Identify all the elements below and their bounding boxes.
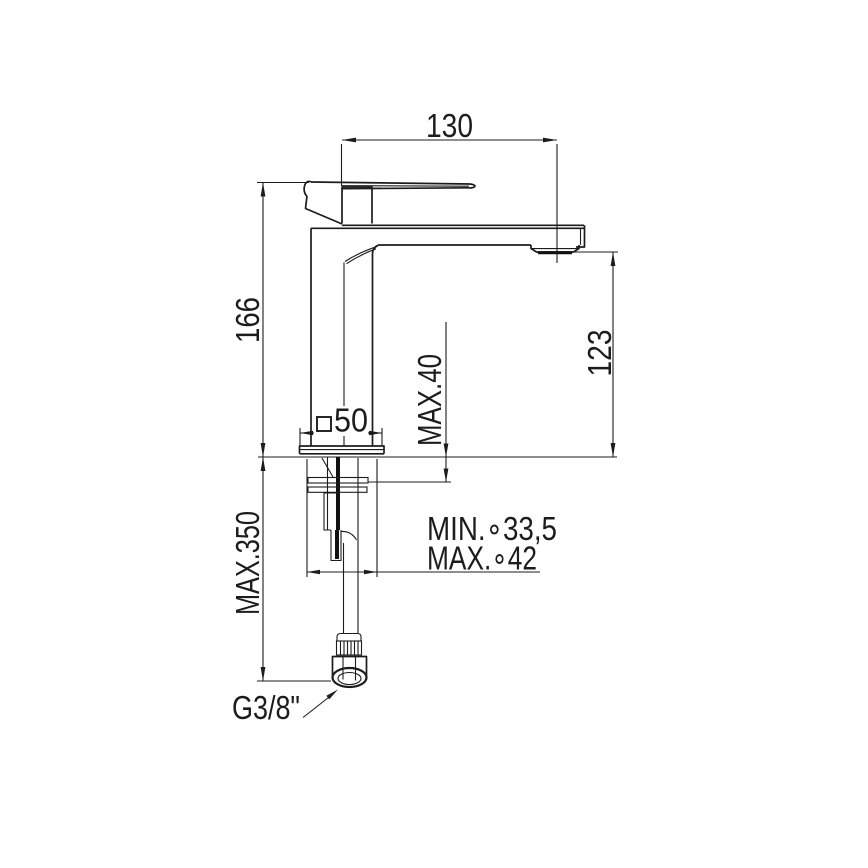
- aerator-outlet: [531, 245, 579, 253]
- arrowhead: [369, 431, 382, 436]
- lever-bottom-edge: [342, 188, 467, 189]
- lever-inner-edge: [342, 186, 469, 187]
- mounting-hardware: [308, 458, 368, 561]
- lever-butt: [304, 181, 311, 196]
- arrowhead: [444, 469, 449, 483]
- lever-top-edge: [311, 182, 470, 184]
- dim-sq50-label: 50: [334, 402, 368, 439]
- dim-max-hole-label: MAX.∘42: [427, 540, 537, 577]
- body-inner-curve-b: [347, 249, 377, 264]
- body-right-edge: [373, 245, 379, 446]
- hose-end-fitting: [333, 634, 367, 688]
- dim-130-label: 130: [426, 107, 473, 144]
- arrowhead: [364, 570, 377, 575]
- dimension-labels: 130 166 123 MAX.40 MAX.350 50 MIN.∘33,5 …: [229, 107, 618, 726]
- base-plate: [300, 446, 385, 454]
- lever-base-front: [306, 196, 343, 224]
- g38-thread-label: G3/8": [232, 689, 300, 726]
- faucet-dimension-drawing: 130 166 123 MAX.40 MAX.350 50 MIN.∘33,5 …: [0, 0, 868, 868]
- g38-leader-line: [303, 698, 329, 718]
- arrowhead: [307, 570, 320, 575]
- faucet-lever-handle: [304, 181, 475, 224]
- fitting-collar: [337, 634, 361, 642]
- dim-max350-label: MAX.350: [229, 511, 266, 615]
- supply-hose: [341, 458, 358, 634]
- arrowhead: [543, 138, 557, 143]
- faucet-cartridge-housing: [342, 187, 372, 224]
- dim-max40-label: MAX.40: [411, 354, 448, 446]
- arrowhead: [261, 667, 266, 681]
- arrowhead: [342, 138, 356, 143]
- nut-opening-inner: [338, 673, 361, 685]
- dim-166-label: 166: [229, 297, 266, 343]
- arrowhead: [611, 252, 616, 266]
- technical-drawing-canvas: 130 166 123 MAX.40 MAX.350 50 MIN.∘33,5 …: [0, 0, 868, 868]
- g38-leader-arrowhead: [326, 690, 338, 700]
- arrowhead: [611, 443, 616, 457]
- hose-bend: [341, 531, 357, 540]
- arrowhead: [261, 443, 266, 457]
- arrowhead: [261, 457, 266, 471]
- arrowhead: [261, 183, 266, 197]
- square-symbol: [317, 417, 331, 431]
- dim-123-label: 123: [581, 330, 618, 377]
- faucet-spout-arm: [311, 225, 585, 247]
